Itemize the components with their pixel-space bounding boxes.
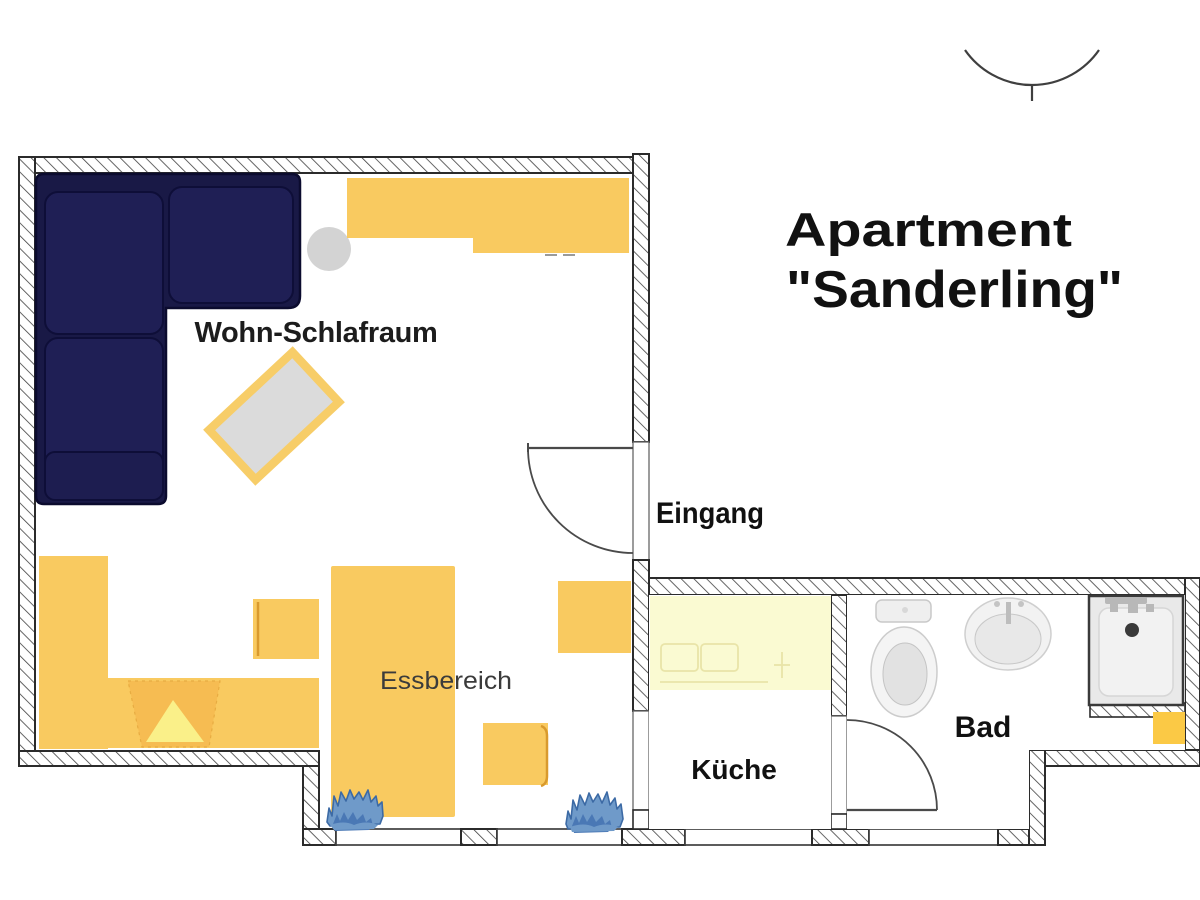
svg-text:Bad: Bad <box>955 711 1012 744</box>
svg-text:Eingang: Eingang <box>656 497 764 530</box>
svg-text:Wohn-Schlafraum: Wohn-Schlafraum <box>194 317 437 349</box>
svg-text:"Sanderling": "Sanderling" <box>786 261 1123 319</box>
svg-text:Küche: Küche <box>691 754 777 785</box>
svg-text:Essbereich: Essbereich <box>380 667 512 695</box>
svg-text:Apartment: Apartment <box>785 203 1072 256</box>
